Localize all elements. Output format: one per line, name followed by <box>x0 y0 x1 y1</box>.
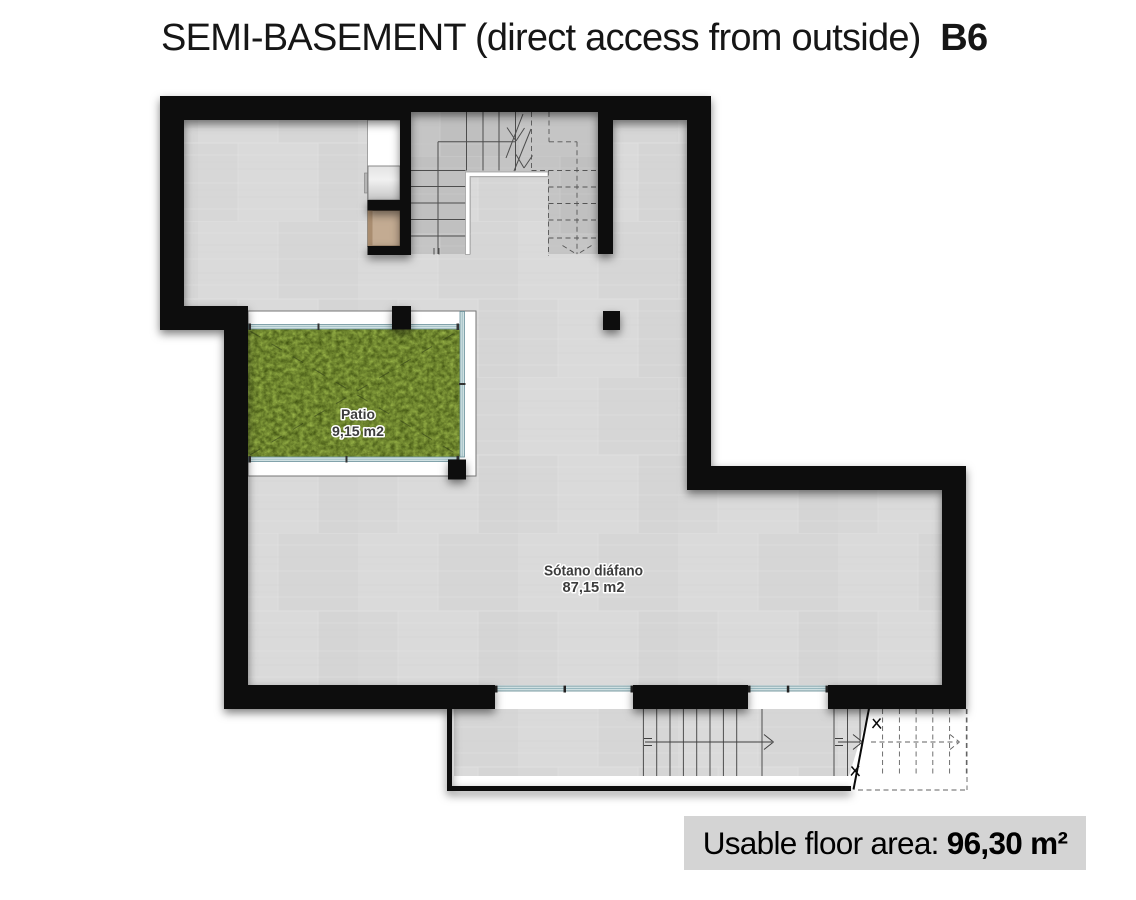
svg-text:87,15 m2: 87,15 m2 <box>563 580 625 596</box>
svg-text:9,15 m2: 9,15 m2 <box>332 424 384 439</box>
svg-text:Patio: Patio <box>341 407 375 422</box>
svg-text:Sótano diáfano: Sótano diáfano <box>544 564 643 580</box>
